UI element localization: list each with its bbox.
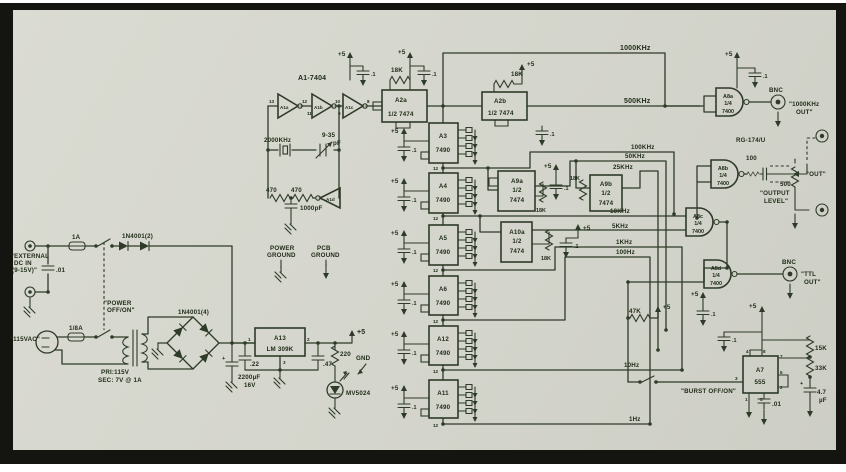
out-1000khz-line2: OUT" [796, 109, 813, 116]
gate-a8a: A8a [723, 94, 734, 100]
bnc-ttl-label: BNC [782, 259, 796, 266]
chip-a5: A5 [439, 235, 448, 242]
ttl-out-line2: OUT" [804, 279, 821, 286]
resistor-47k: 47K [629, 308, 641, 315]
cap-47uf-value: 4.7 [817, 389, 827, 396]
gate-a8c-q: 1/4 [694, 221, 702, 227]
counter-output-stub [458, 246, 475, 255]
chip-a11: A11 [437, 390, 449, 397]
cap-47uf-plus: + [800, 381, 803, 387]
counter-stub-arrow [473, 210, 478, 215]
counter-output-stub [458, 393, 475, 402]
counter-output-stub [458, 178, 475, 187]
counter-pin-box [421, 355, 429, 362]
plus5-counter: +5 [391, 281, 399, 288]
counter-pin-12: 12 [433, 216, 439, 221]
led-mv5024: MV5024 [346, 390, 371, 397]
power-ground-line2: GROUND [267, 252, 296, 259]
pin-8: 8 [367, 99, 370, 104]
counter-output-stub [458, 194, 475, 203]
chip-a6-part: 7490 [436, 300, 451, 307]
power-switch-line2: OFF/ON" [107, 307, 135, 314]
cap-01-a2b: .1 [550, 132, 555, 138]
counter-pin-box [421, 305, 429, 312]
pin-11: 11 [307, 111, 312, 116]
resistor-220: 220 [340, 351, 351, 358]
counter-stub-arrow [473, 262, 478, 267]
cap-01-a8a: .1 [763, 74, 768, 80]
ground-legend: POWER GROUND PCB GROUND [267, 245, 340, 282]
divider-flipflops: A2a 1/2 7474 18K +5 .1 A2b 1/2 7474 18K … [373, 49, 555, 146]
chip-a13: A13 [274, 335, 286, 342]
rail-100khz: 100KHz [631, 144, 655, 151]
magazine-schematic-page: A1-7404 A1a A1b A1c 13 12 11 10 9 8 2000… [0, 0, 846, 472]
pin-555-6: 6 [780, 370, 783, 375]
cap-22: .22 [250, 361, 260, 368]
coax-label: RG-174/U [736, 137, 766, 144]
counter-output-stub [458, 152, 475, 161]
chip-a9a: A9a [511, 178, 523, 185]
ext-dc-line3: (9-15V)" [12, 267, 37, 274]
counter-bypass: +5.1 [391, 385, 429, 419]
chip-a10a-h2: 7474 [510, 248, 525, 255]
cap-01-counter: .1 [412, 250, 417, 256]
chip-a11-part: 7490 [436, 404, 451, 411]
pin-555-1: 1 [745, 397, 748, 402]
cap-2200uf: 2200µF [238, 374, 260, 381]
cap-dc-in: .01 [56, 267, 66, 274]
counter-stub-arrow [473, 313, 478, 318]
pot-500: 500 [780, 181, 791, 188]
plus5-a2a: +5 [398, 49, 406, 56]
counter-output-stub [458, 281, 475, 290]
pcb-ground-line2: GROUND [311, 252, 340, 259]
pin-a13-2: 2 [307, 337, 310, 342]
chip-a4: A4 [439, 183, 448, 190]
counter-bypass: +5.1 [391, 230, 429, 264]
trimmer-value: 9-35 [322, 132, 336, 139]
gate-a1b-label: A1b [314, 105, 323, 110]
counter-bypass: +5.1 [391, 281, 429, 315]
chip-a12-part: 7490 [436, 350, 451, 357]
plus5-counter: +5 [391, 178, 399, 185]
chip-a10a: A10a [509, 229, 525, 236]
counter-pin-12: 12 [433, 166, 439, 171]
pin-a13-3: 3 [283, 360, 286, 365]
counter-stub-arrow [473, 417, 478, 422]
counter-pin-12: 12 [433, 423, 439, 428]
resistor-100: 100 [746, 155, 757, 162]
power-supply-section: "EXTERNAL DC IN (9-15V)" .01 1A "POWER O… [10, 233, 371, 418]
counter-pin-12: 12 [433, 319, 439, 324]
rail-5khz: 5KHz [612, 223, 628, 230]
rail-1000khz: 1000KHz [620, 45, 651, 52]
chip-a2a: A2a [395, 97, 407, 104]
output-level-line2: LEVEL" [764, 198, 788, 205]
a9b-18k: 18K [570, 176, 580, 182]
chip-a9a-h2: 7474 [510, 197, 525, 204]
cap-01-a10a: .1 [574, 244, 579, 250]
gate-a8a-q: 1/4 [724, 101, 732, 107]
pin-555-4: 4 [746, 349, 749, 354]
rail-500khz: 500KHz [624, 98, 651, 105]
gate-a8b: A8b [718, 166, 729, 172]
plus5-counter: +5 [391, 331, 399, 338]
a9a-18k: 18K [536, 208, 546, 214]
cap-01-counter: .1 [412, 198, 417, 204]
counter-output-stub [458, 297, 475, 306]
plus5-a9a: +5 [544, 163, 552, 170]
crystal-label: 2000KHz [264, 137, 291, 144]
plus5-47k: +5 [663, 304, 671, 311]
gate-a8d-q: 1/4 [712, 273, 720, 279]
chip-a2a-part: 1/2 7474 [388, 111, 414, 118]
gate-a8c: A8c [693, 214, 703, 220]
a2b-pullup-18k: 18K [511, 71, 523, 78]
chip-a7: A7 [756, 367, 765, 374]
chip-a2b: A2b [494, 98, 506, 105]
ext-dc-line2: DC IN [14, 260, 32, 267]
gate-a8b-part: 7400 [717, 181, 729, 187]
counter-output-stub [458, 128, 475, 137]
plus5-counter: +5 [391, 128, 399, 135]
pin-12: 12 [302, 99, 308, 104]
burst-switch-label: "BURST OFF/ON" [681, 388, 736, 395]
bnc-1000khz-label: BNC [769, 87, 783, 94]
cap-47uf-unit: µF [819, 397, 827, 404]
counter-output-stub [458, 409, 475, 418]
plus5-osc: +5 [338, 51, 346, 58]
output-level-line1: "OUTPUT [760, 190, 790, 197]
plus5-counter: +5 [391, 230, 399, 237]
ttl-out-line1: "TTL [801, 271, 816, 278]
chip-a9b-h1: 1/2 [601, 190, 611, 197]
osc-ic-label: A1-7404 [298, 75, 326, 82]
pin-13: 13 [269, 99, 275, 104]
counter-output-stub [458, 385, 475, 394]
cap-01-osc: .1 [371, 72, 376, 78]
counter-output-stub [458, 355, 475, 364]
cap-01-counter: .1 [412, 405, 417, 411]
burst-555-section: 47K +5 "BURST OFF/ON" A7 555 3 4 8 7 6 2… [626, 280, 827, 425]
counter-bypass: +5.1 [391, 128, 429, 162]
vac-label: "115VAC" [10, 336, 40, 343]
fuse-1a: 1A [72, 234, 81, 241]
rail-50khz: 50KHz [625, 153, 645, 160]
gate-a1d-label: A1d [326, 197, 335, 202]
cap-47: .47 [323, 361, 333, 368]
gate-a8a-part: 7400 [722, 109, 734, 115]
counter-output-stub [458, 254, 475, 263]
cap-01-pin5: .01 [772, 401, 782, 408]
chip-a5-part: 7490 [436, 249, 451, 256]
crystal-oscillator-section: A1-7404 A1a A1b A1c 13 12 11 10 9 8 2000… [264, 51, 382, 234]
chip-a6: A6 [439, 286, 448, 293]
cap-2200uf-v: 16V [244, 382, 256, 389]
chip-a13-part: LM 309K [267, 346, 294, 353]
gate-a8b-q: 1/4 [719, 173, 727, 179]
resistor-470-2: 470 [291, 187, 302, 194]
counter-output-stub [458, 331, 475, 340]
counter-output-stub [458, 347, 475, 356]
cap-01-counter: .1 [412, 351, 417, 357]
cap-01-a8: .1 [711, 312, 716, 318]
counter-bypass: +5.1 [391, 178, 429, 212]
rail-10hz: 10Hz [624, 362, 639, 369]
gate-a8c-part: 7400 [692, 229, 704, 235]
plus5-a2b: +5 [527, 61, 535, 68]
cap-01-a9a: .1 [564, 186, 569, 192]
power-ground-line1: POWER [270, 245, 295, 252]
counter-stub-arrow [473, 160, 478, 165]
chip-a9a-h1: 1/2 [512, 187, 522, 194]
pin-10: 10 [335, 99, 341, 104]
pin-a13-1: 1 [248, 337, 251, 342]
counter-output-stub [458, 202, 475, 211]
counter-bypass: +5.1 [391, 331, 429, 365]
plus5-a10a: +5 [583, 225, 591, 232]
counter-output-stub [458, 230, 475, 239]
gate-a8d-part: 7400 [710, 281, 722, 287]
xfmr-pri: PRI:115V [101, 369, 130, 376]
bridge-1n4001-4: 1N4001(4) [178, 309, 209, 316]
gate-a8d: A8d [711, 266, 721, 272]
counter-output-stub [458, 238, 475, 247]
counter-output-stub [458, 339, 475, 348]
counter-output-stub [458, 401, 475, 410]
chip-a9b: A9b [600, 181, 612, 188]
resistor-15k: 15K [815, 345, 827, 352]
counter-pin-box [421, 152, 429, 159]
counter-pin-box [421, 202, 429, 209]
cap-01-a2a: .1 [432, 72, 437, 78]
chip-a12: A12 [437, 336, 449, 343]
counter-output-stub [458, 136, 475, 145]
pin-555-8: 8 [763, 349, 766, 354]
cap-01-555: .1 [732, 338, 737, 344]
counter-output-stub [458, 144, 475, 153]
cap-01-counter: .1 [412, 301, 417, 307]
a2a-pullup-18k: 18K [391, 67, 403, 74]
diodes-1n4001-2: 1N4001(2) [122, 233, 153, 240]
counter-pin-box [421, 409, 429, 416]
counter-pin-box [421, 254, 429, 261]
plus5-a8: +5 [691, 291, 699, 298]
a10a-18k: 18K [541, 256, 551, 262]
resistor-33k: 33K [815, 365, 827, 372]
resistor-470-1: 470 [266, 187, 277, 194]
chip-a10a-h1: 1/2 [512, 238, 522, 245]
cap-2200-plus: + [222, 356, 225, 362]
counter-output-stub [458, 289, 475, 298]
pin-555-3: 3 [735, 376, 738, 381]
gate-a1a-label: A1a [280, 105, 289, 110]
chip-a4-part: 7490 [436, 197, 451, 204]
chip-a7-part: 555 [755, 379, 766, 386]
fuse-eighth-a: 1/8A [69, 325, 83, 332]
chip-a3-part: 7490 [436, 147, 451, 154]
counter-output-stub [458, 186, 475, 195]
frequency-standard-schematic: A1-7404 A1a A1b A1c 13 12 11 10 9 8 2000… [0, 0, 846, 472]
pcb-ground-line1: PCB [317, 245, 331, 252]
counter-pin-12: 12 [433, 268, 439, 273]
counter-output-stub [458, 305, 475, 314]
chip-a2b-part: 1/2 7474 [488, 110, 514, 117]
frequency-rails: 1000KHz 500KHz 100KHz 50KHz 25KHz 10KHz … [427, 45, 700, 426]
plus5-counter: +5 [391, 385, 399, 392]
gnd-label: GND [356, 355, 371, 362]
out-1000khz-line1: "1000KHz [789, 101, 819, 108]
xfmr-sec: SEC: 7V @ 1A [98, 377, 142, 384]
power-switch-line1: "POWER [104, 300, 132, 307]
rail-25khz: 25KHz [613, 164, 633, 171]
plus5-555: +5 [749, 303, 757, 310]
plus5-a8a: +5 [725, 51, 733, 58]
cap-1000pf: 1000pF [300, 205, 323, 212]
out-jack-label: "OUT" [806, 171, 826, 178]
rail-100hz: 100Hz [616, 249, 635, 256]
rail-1khz: 1KHz [616, 239, 632, 246]
trimmer-unit: pF [333, 140, 341, 147]
counter-stub-arrow [473, 363, 478, 368]
gate-a1c-label: A1c [345, 105, 354, 110]
plus5-main: +5 [357, 329, 365, 336]
cap-01-counter: .1 [412, 148, 417, 154]
chip-a9b-h2: 7474 [599, 200, 614, 207]
rail-1hz: 1Hz [629, 416, 641, 423]
counter-pin-12: 12 [433, 369, 439, 374]
chip-a3: A3 [439, 133, 448, 140]
ext-dc-line1: "EXTERNAL [11, 253, 49, 260]
